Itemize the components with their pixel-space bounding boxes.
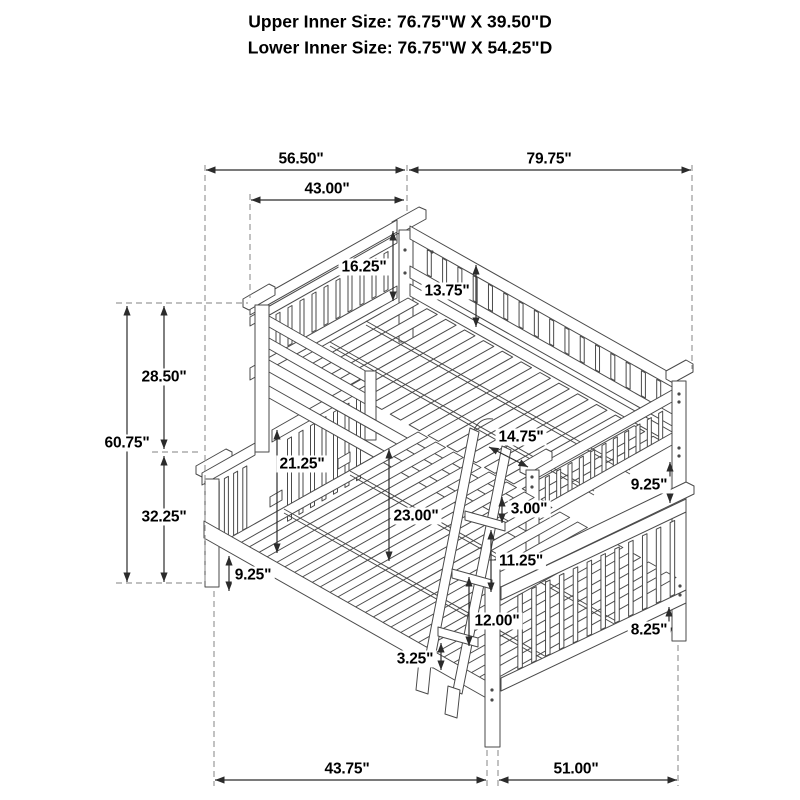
bunk-bed-dimension-diagram: Upper Inner Size: 76.75"W X 39.50"D Lowe… — [0, 0, 800, 800]
dim-label-lower-section: 32.25" — [139, 508, 190, 525]
dim-label-right-rail-gap: 9.25" — [628, 476, 671, 493]
dim-label-headboard-width: 43.00" — [302, 180, 353, 197]
dim-label-ladder-foot: 3.25" — [394, 650, 437, 667]
dim-label-bottom-right-span: 51.00" — [551, 760, 602, 777]
page-title-lower-size: Lower Inner Size: 76.75"W X 54.25"D — [248, 38, 552, 59]
dim-label-top-right-span: 79.75" — [524, 150, 575, 167]
dim-label-right-leg: 8.25" — [628, 621, 671, 638]
dim-label-left-rail-floor: 9.25" — [232, 566, 275, 583]
dim-label-guard-height: 16.25" — [339, 258, 390, 275]
dim-label-upper-section: 28.50" — [139, 368, 190, 385]
dim-label-rail-gap: 3.00" — [508, 500, 551, 517]
bunk-bed-line-drawing — [0, 0, 800, 800]
dim-label-rung-spacing: 11.25" — [496, 552, 546, 569]
dim-label-back-rail-height: 13.75" — [422, 282, 473, 299]
dim-label-top-left-span: 56.50" — [276, 150, 327, 167]
dim-label-footboard-panel: 12.00" — [472, 612, 523, 629]
dim-label-bunk-clearance: 21.25" — [277, 455, 328, 472]
dim-label-depth-offset: 14.75" — [496, 428, 547, 445]
dim-label-bottom-left-span: 43.75" — [322, 760, 373, 777]
page-title-upper-size: Upper Inner Size: 76.75"W X 39.50"D — [248, 12, 552, 33]
dim-label-underbed-clearance: 23.00" — [391, 507, 442, 524]
dim-label-overall-height: 60.75" — [102, 434, 153, 451]
